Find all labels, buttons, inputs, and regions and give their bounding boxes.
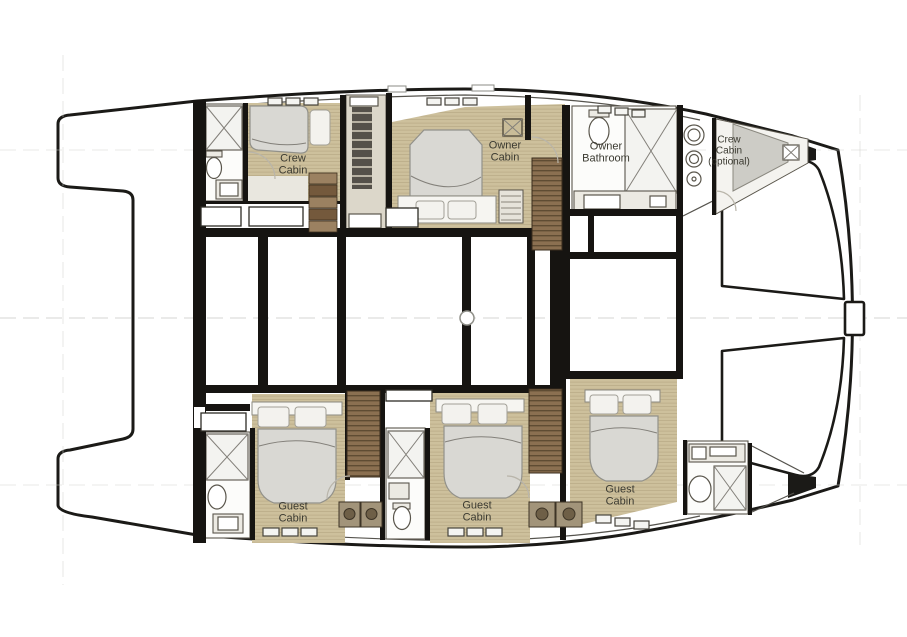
fwd-closet-wall-bottom [565, 252, 683, 259]
mast-post-ring [460, 311, 474, 325]
owner-pillow-right [448, 201, 476, 219]
saloon-wall-2 [337, 236, 346, 385]
deck-hatches-crew [268, 98, 318, 105]
label-crew-cabin-aft: Crew Cabin [279, 154, 308, 177]
guest-fwd-bath-left-wall [683, 440, 687, 515]
guest-aft-sink-basin [218, 517, 238, 530]
crew-bath-wall [243, 103, 248, 202]
crew-toilet-tank [206, 151, 222, 157]
deck-hatches-owner [427, 98, 477, 105]
laundry-units-left [339, 502, 382, 527]
saloon-wall-1 [258, 236, 268, 385]
guest-mid-pillow-right [478, 404, 507, 424]
flush-hatch-top-2 [472, 85, 494, 91]
closet-divider [588, 209, 594, 259]
guest-stairs-left [347, 391, 380, 477]
label-owner-bathroom: Owner Bathroom [582, 142, 630, 165]
label-guest-cabin-mid: Guest Cabin [462, 501, 491, 524]
flush-hatch-top-1 [388, 86, 406, 92]
top-hull-inner-wall [197, 228, 562, 237]
washer-drum-3-inner [692, 177, 696, 181]
hull-windows-guest-mid [448, 528, 502, 536]
mid-bath-right-wall [425, 428, 430, 540]
bowsprit [845, 302, 864, 335]
owner-bath-left-wall [562, 105, 570, 379]
owner-vanity-sink [584, 195, 620, 209]
guest-mid-pillow-left [442, 404, 471, 424]
label-crew-cabin-fwd: Crew Cabin (optional) [708, 135, 750, 168]
locker-guest-mid [386, 390, 432, 401]
locker-owner [386, 208, 418, 227]
ladder-left-wall [340, 95, 346, 236]
guest-stairs-right [529, 389, 562, 473]
crew-sink-basin [220, 183, 238, 196]
label-guest-cabin-fwd: Guest Cabin [605, 485, 634, 508]
locker-guest-aft [201, 413, 246, 431]
label-owner-cabin: Owner Cabin [489, 141, 521, 164]
guest-fwd-top-wall [562, 371, 683, 379]
crew-pillow [310, 110, 330, 145]
owner-pillow-left [416, 201, 444, 219]
ladder-bottom-locker [349, 214, 381, 228]
floorplan-drawing [0, 0, 907, 637]
locker-crew-1 [201, 207, 241, 226]
guest-fwd-bed [590, 416, 658, 481]
aft-bulkhead [193, 100, 206, 543]
owner-stairs [532, 158, 562, 250]
guest-fwd-bath-right-wall [748, 443, 752, 515]
owner-bath-right-wall [677, 105, 683, 212]
ladder-top-locker [350, 97, 378, 106]
guest-aft-pillow-left [258, 407, 289, 427]
guest-fwd-pillow-left [590, 395, 618, 414]
floorplan-canvas: Crew Cabin Owner Cabin Owner Bathroom Cr… [0, 0, 907, 637]
laundry-units-right [529, 502, 582, 527]
guest-fwd-toilet [689, 476, 711, 502]
crew-steps [309, 173, 337, 232]
guest-aft-pillow-right [295, 407, 326, 427]
owner-vanity-basin2 [650, 196, 666, 207]
owner-bed [410, 130, 482, 196]
guest-aft-toilet [208, 485, 226, 509]
locker-crew-2 [249, 207, 303, 226]
crew-bed [250, 106, 308, 153]
owner-wardrobe [499, 190, 523, 223]
crew-toilet [207, 158, 222, 179]
hull-windows-guest-aft [263, 528, 317, 536]
washer-drum-1-inner [688, 129, 700, 141]
guest-fwd-counter-item [710, 447, 736, 456]
guest-aft-bath-wall [250, 428, 255, 540]
guest-aft-bed [258, 429, 336, 503]
guest-mid-toilet [394, 507, 411, 530]
guest-mid-sink [389, 483, 409, 499]
fwd-saloon-wall [676, 209, 683, 379]
owner-top-right-wall [525, 95, 531, 140]
stairwell-wall [550, 247, 562, 385]
washer-drum-2-inner [690, 155, 699, 164]
crew-cabin-floor-light [248, 176, 308, 203]
saloon-wall-4 [527, 236, 535, 385]
guest-fwd-counter-sink [692, 447, 706, 459]
label-guest-cabin-aft: Guest Cabin [278, 502, 307, 525]
guest-fwd-pillow-right [623, 395, 651, 414]
fwd-closet-wall-top [565, 209, 683, 216]
